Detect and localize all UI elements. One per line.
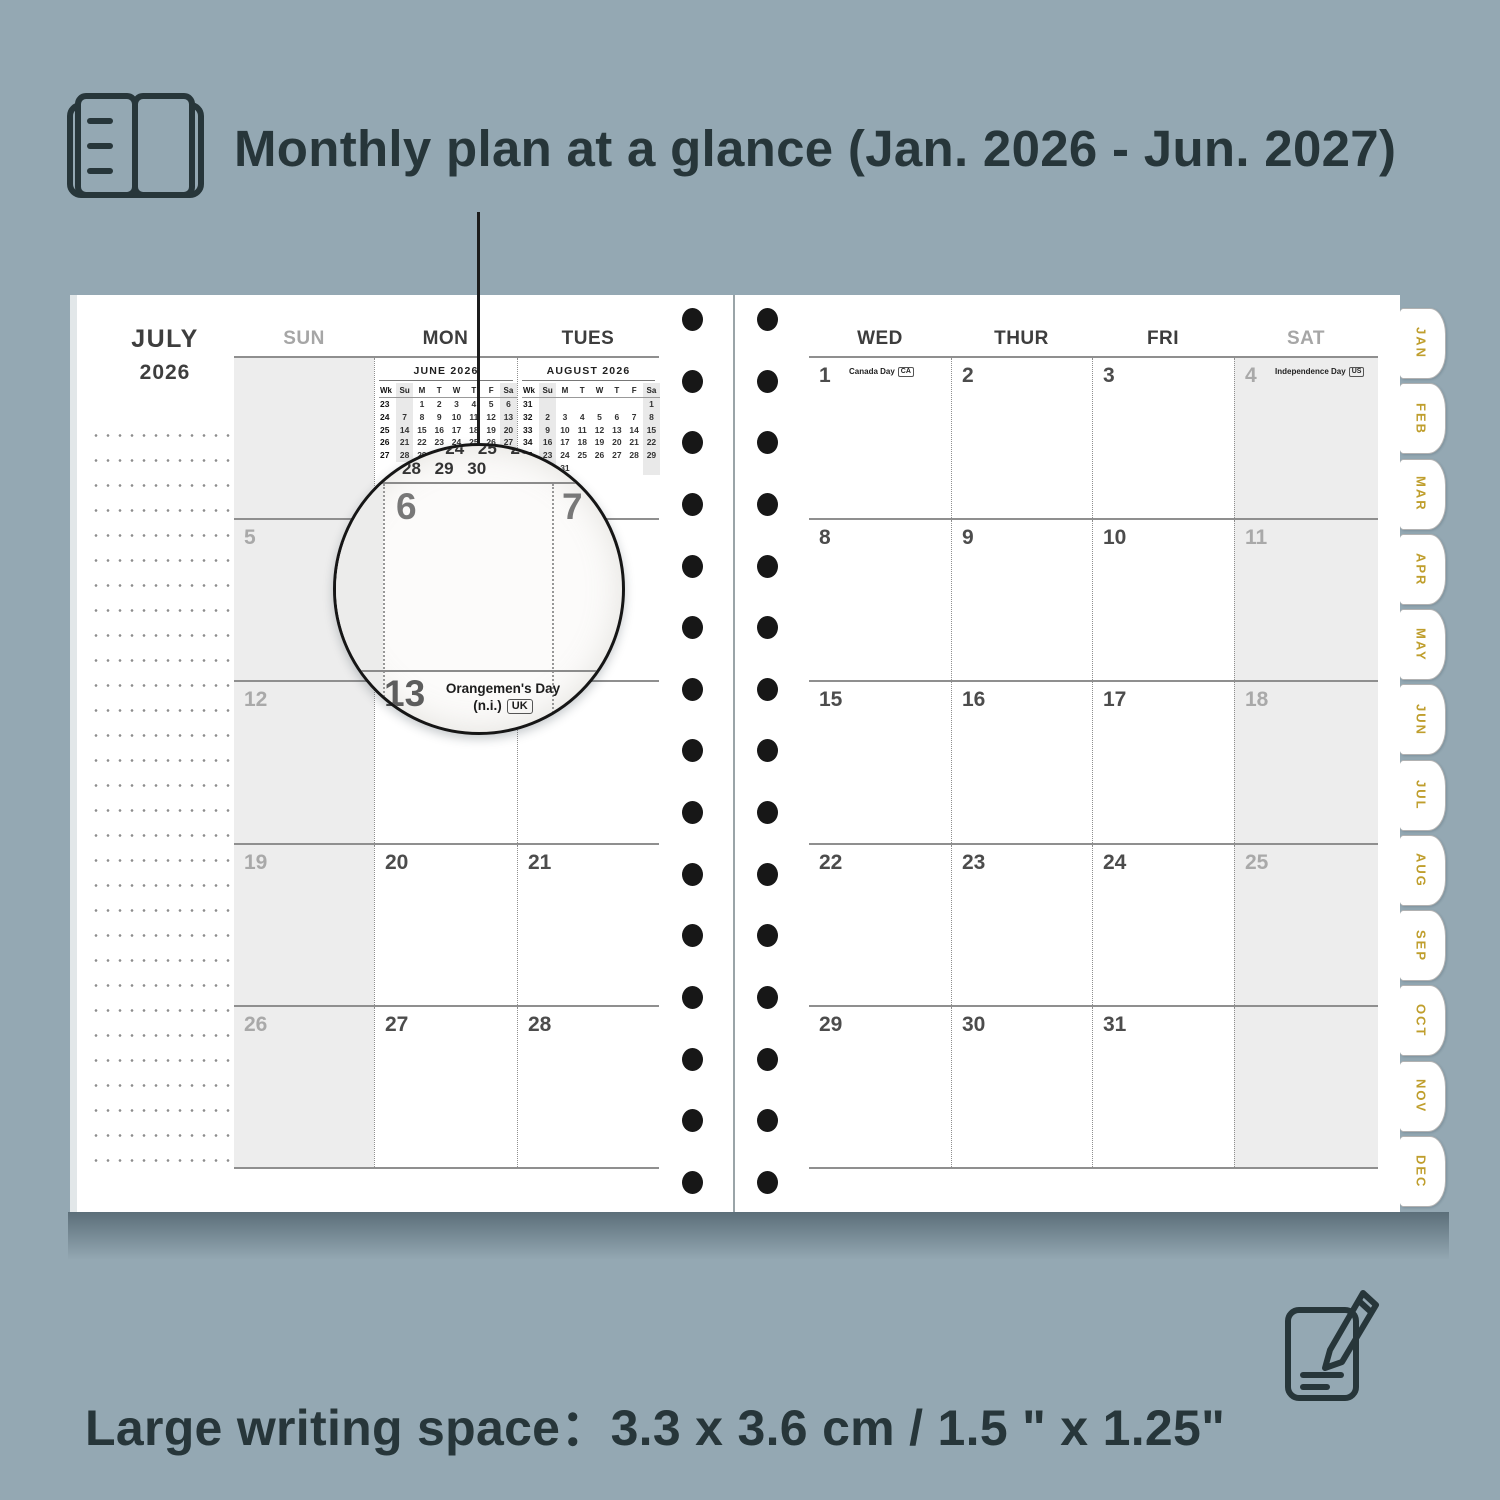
day-number: 3 (1103, 364, 1115, 388)
binder-hole (757, 986, 778, 1009)
mini-calendar-day: 28 (625, 449, 642, 462)
weekday-header: WED (809, 328, 951, 354)
lens-day-number: 13 (384, 673, 425, 715)
month-tab-label: APR (1414, 553, 1429, 586)
binder-hole (682, 308, 703, 331)
binder-hole (757, 1171, 778, 1194)
weekday-header: THUR (951, 328, 1092, 354)
mini-calendar-day: 24 (556, 449, 573, 462)
day-number: 22 (819, 851, 842, 875)
mini-calendar-day: 29 (643, 449, 660, 462)
mini-calendar-day: 11 (574, 424, 591, 437)
day-number: 9 (962, 526, 974, 550)
holiday-label: Independence DayUS (1275, 367, 1364, 377)
mini-calendar-day (643, 462, 660, 475)
mini-calendar-day: 32 (522, 411, 539, 424)
mini-calendar-day: 22 (643, 436, 660, 449)
calendar-week-row: 22232425 (809, 845, 1378, 1007)
calendar-week-row: 1Canada DayCA234Independence DayUS (809, 358, 1378, 520)
mini-calendar-day (608, 462, 625, 475)
weekday-headers-left: SUNMONTUES (234, 328, 659, 354)
mini-calendar-day (625, 398, 642, 411)
month-tab-feb: FEB (1397, 383, 1446, 454)
binder-hole (757, 1048, 778, 1071)
binder-hole (757, 739, 778, 762)
month-tab-jul: JUL (1397, 760, 1446, 831)
calendar-cell: 2 (951, 358, 1092, 518)
lens-mini-row: 22 23 24 25 26 (380, 443, 529, 459)
mini-calendar-day: 31 (522, 398, 539, 411)
month-tab-jun: JUN (1397, 684, 1446, 755)
mini-calendar-day: 7 (396, 411, 413, 424)
binder-hole (682, 986, 703, 1009)
binder-hole (757, 370, 778, 393)
day-number: 30 (962, 1013, 985, 1037)
mini-calendar-header: T (431, 383, 448, 398)
mini-calendar-day (591, 462, 608, 475)
day-number: 23 (962, 851, 985, 875)
binder-hole (682, 1109, 703, 1132)
weekday-header: TUES (517, 328, 659, 354)
mini-calendar-day: 14 (625, 424, 642, 437)
left-page: JULY 2026 SUNMONTUES JUNE 2026WkSuMTWTFS… (70, 295, 733, 1212)
mini-calendar-day: 7 (625, 411, 642, 424)
calendar-cell: 3 (1092, 358, 1234, 518)
mini-calendar-day: 16 (431, 424, 448, 437)
mini-calendar-header: T (574, 383, 591, 398)
mini-calendar-day: 23 (379, 398, 396, 411)
mini-calendar-header: Su (539, 383, 556, 398)
mini-calendar-header: M (556, 383, 573, 398)
binder-hole (682, 1048, 703, 1071)
calendar-cell: 15 (809, 682, 951, 842)
binder-hole (757, 308, 778, 331)
calendar-week-row: 293031 (809, 1007, 1378, 1169)
binder-hole (757, 678, 778, 701)
holiday-text: Canada Day (849, 367, 895, 376)
binder-hole (682, 555, 703, 578)
binder-hole (682, 370, 703, 393)
mini-calendar-header: F (625, 383, 642, 398)
mini-calendar-day: 15 (643, 424, 660, 437)
mini-calendar-header: Sa (643, 383, 660, 398)
product-banner: Monthly plan at a glance (Jan. 2026 - Ju… (0, 0, 1500, 1500)
day-number: 18 (1245, 688, 1268, 712)
calendar-cell: 24 (1092, 845, 1234, 1005)
mini-calendar-header: Wk (522, 383, 539, 398)
binder-hole (682, 863, 703, 886)
mini-calendar-day: 1 (413, 398, 430, 411)
month-tabs: JANFEBMARAPRMAYJUNJULAUGSEPOCTNOVDEC (1397, 308, 1447, 1207)
day-number: 25 (1245, 851, 1268, 875)
binder-hole (682, 801, 703, 824)
mini-calendar-day: 17 (448, 424, 465, 437)
mini-calendar-header: Su (396, 383, 413, 398)
mini-calendar-day: 17 (556, 436, 573, 449)
day-number: 26 (244, 1013, 267, 1037)
mini-calendar-day (396, 398, 413, 411)
binder-hole (757, 924, 778, 947)
calendar-week-row: 262728 (234, 1007, 659, 1169)
mini-calendar-day (608, 398, 625, 411)
mini-calendar-day (539, 398, 556, 411)
mini-calendar-day: 16 (539, 436, 556, 449)
month-name: JULY (110, 325, 220, 354)
holiday-region-badge: CA (898, 367, 914, 377)
calendar-cell: 22 (809, 845, 951, 1005)
calendar-cell: 29 (809, 1007, 951, 1167)
day-number: 28 (528, 1013, 551, 1037)
mini-calendar-day: 10 (448, 411, 465, 424)
mini-calendar-day: 26 (591, 449, 608, 462)
binder-hole (757, 801, 778, 824)
holiday-label: Canada DayCA (849, 367, 914, 377)
binder-hole (757, 616, 778, 639)
mini-calendar-day: 25 (574, 449, 591, 462)
magnifier-circle: 22 23 24 25 26 28 29 30 6 7 13 Orangemen… (333, 443, 625, 735)
calendar-cell (1234, 1007, 1378, 1167)
day-number: 11 (1245, 526, 1267, 550)
weekday-header: MON (374, 328, 517, 354)
mini-calendar-day: 3 (448, 398, 465, 411)
day-number: 8 (819, 526, 831, 550)
calendar-cell: 27 (374, 1007, 517, 1167)
mini-calendar-day: 6 (608, 411, 625, 424)
month-tab-label: AUG (1414, 853, 1429, 888)
mini-calendar-day: 5 (482, 398, 499, 411)
mini-calendar-header: Wk (379, 383, 396, 398)
month-tab-label: OCT (1414, 1004, 1429, 1037)
mini-calendar-day: 12 (591, 424, 608, 437)
mini-calendar-day: 1 (643, 398, 660, 411)
month-tab-label: NOV (1414, 1079, 1429, 1113)
calendar-cell: 26 (234, 1007, 374, 1167)
mini-calendar-day: 10 (556, 424, 573, 437)
month-tab-may: MAY (1397, 609, 1446, 680)
mini-calendar-day: 8 (413, 411, 430, 424)
month-tab-oct: OCT (1397, 985, 1446, 1056)
mini-calendar-day: 15 (413, 424, 430, 437)
weekday-header: SUN (234, 328, 374, 354)
holiday-text: Independence Day (1275, 367, 1346, 376)
binder-hole (682, 678, 703, 701)
month-tab-nov: NOV (1397, 1061, 1446, 1132)
mini-calendar-day: 3 (556, 411, 573, 424)
month-title-block: JULY 2026 (110, 325, 220, 385)
mini-calendar-day: 9 (539, 424, 556, 437)
magnifier-pointer-line (477, 212, 480, 446)
binder-hole (682, 431, 703, 454)
binder-hole (682, 616, 703, 639)
lens-holiday-label: Orangemen's Day (n.i.)UK (424, 680, 582, 714)
mini-calendar-day (625, 462, 642, 475)
holiday-region-badge: UK (507, 699, 533, 714)
day-number: 15 (819, 688, 842, 712)
month-tab-aug: AUG (1397, 835, 1446, 906)
mini-calendar-header: T (608, 383, 625, 398)
binder-hole (682, 1171, 703, 1194)
calendar-cell: 20 (374, 845, 517, 1005)
binder-hole (757, 555, 778, 578)
calendar-cell: 21 (517, 845, 659, 1005)
day-number: 12 (244, 688, 267, 712)
calendar-week-row: 192021 (234, 845, 659, 1007)
calendar-cell: 1Canada DayCA (809, 358, 951, 518)
mini-calendar-day: 2 (431, 398, 448, 411)
mini-calendar-day: 21 (625, 436, 642, 449)
mini-calendar-day: 25 (379, 424, 396, 437)
binder-hole (757, 493, 778, 516)
day-number: 1 (819, 364, 831, 388)
mini-calendar-day: 20 (608, 436, 625, 449)
mini-calendar-day: 4 (574, 411, 591, 424)
top-caption: Monthly plan at a glance (Jan. 2026 - Ju… (63, 90, 1396, 207)
lens-mini-row: 28 29 30 (402, 459, 486, 479)
mini-calendar-title: JUNE 2026 (379, 362, 513, 381)
open-planner-icon (63, 90, 208, 207)
month-tab-jan: JAN (1397, 308, 1446, 379)
binder-hole (757, 863, 778, 886)
calendar-cell: 18 (1234, 682, 1378, 842)
day-number: 31 (1103, 1013, 1126, 1037)
notepad-pencil-icon (1282, 1282, 1384, 1409)
calendar-cell: 4Independence DayUS (1234, 358, 1378, 518)
mini-calendar-header: W (448, 383, 465, 398)
mini-calendar-day: 19 (591, 436, 608, 449)
month-year: 2026 (110, 361, 220, 385)
right-page: WEDTHURFRISAT 1Canada DayCA234Independen… (733, 295, 1400, 1212)
calendar-week-row: 891011 (809, 520, 1378, 682)
mini-calendar-day: 2 (539, 411, 556, 424)
month-tab-label: FEB (1414, 403, 1429, 435)
mini-calendar-day: 33 (522, 424, 539, 437)
mini-calendar-day: 5 (591, 411, 608, 424)
mini-calendar-day: 6 (500, 398, 517, 411)
month-tab-label: SEP (1414, 930, 1429, 962)
weekday-headers-right: WEDTHURFRISAT (809, 328, 1378, 354)
mini-calendar-day (591, 398, 608, 411)
mini-calendar-header: W (591, 383, 608, 398)
day-number: 20 (385, 851, 408, 875)
lens-day-number: 6 (396, 486, 417, 528)
month-tab-dec: DEC (1397, 1136, 1446, 1207)
calendar-cell: 10 (1092, 520, 1234, 680)
binder-hole (757, 1109, 778, 1132)
day-number: 2 (962, 364, 974, 388)
top-caption-text: Monthly plan at a glance (Jan. 2026 - Ju… (234, 119, 1396, 178)
lens-grid-line (336, 670, 622, 672)
mini-calendar-day: 24 (379, 411, 396, 424)
day-number: 21 (528, 851, 551, 875)
calendar-cell: 28 (517, 1007, 659, 1167)
mini-calendar-header: Sa (500, 383, 517, 398)
lens-shaded-column (336, 484, 383, 732)
binder-hole (682, 493, 703, 516)
mini-calendar-day: 27 (608, 449, 625, 462)
day-number: 29 (819, 1013, 842, 1037)
calendar-cell: 11 (1234, 520, 1378, 680)
mini-calendar-day: 8 (643, 411, 660, 424)
mini-calendar-title: AUGUST 2026 (522, 362, 655, 381)
mini-calendar-day: 14 (396, 424, 413, 437)
bottom-caption-text: Large writing space：3.3 x 3.6 cm / 1.5 "… (85, 1388, 1225, 1460)
month-tab-label: JAN (1414, 327, 1429, 359)
binder-hole (757, 431, 778, 454)
month-tab-label: DEC (1414, 1155, 1429, 1188)
day-number: 16 (962, 688, 985, 712)
spiral-binding-right (757, 308, 779, 1194)
mini-calendar-day: 19 (482, 424, 499, 437)
holiday-region-badge: US (1349, 367, 1365, 377)
mini-calendar-day: 9 (431, 411, 448, 424)
day-number: 4 (1245, 364, 1257, 388)
day-number: 5 (244, 526, 256, 550)
calendar-cell: 31 (1092, 1007, 1234, 1167)
mini-calendar-day: 20 (500, 424, 517, 437)
day-number: 24 (1103, 851, 1126, 875)
calendar-cell: 25 (1234, 845, 1378, 1005)
day-number: 10 (1103, 526, 1126, 550)
mini-calendar-day (574, 398, 591, 411)
mini-calendar-day (556, 398, 573, 411)
weekday-header: FRI (1092, 328, 1234, 354)
calendar-cell: 23 (951, 845, 1092, 1005)
mini-calendar-day: 13 (500, 411, 517, 424)
month-tab-label: JUN (1414, 704, 1429, 736)
notes-dot-grid (88, 413, 232, 1165)
day-number: 19 (244, 851, 267, 875)
day-number: 17 (1103, 688, 1126, 712)
planner-spread: JULY 2026 SUNMONTUES JUNE 2026WkSuMTWTFS… (70, 295, 1400, 1212)
mini-calendar-day: 18 (574, 436, 591, 449)
spiral-binding-left (682, 308, 704, 1194)
day-number: 27 (385, 1013, 408, 1037)
month-tab-label: MAY (1414, 628, 1429, 662)
calendar-cell: 17 (1092, 682, 1234, 842)
month-tab-sep: SEP (1397, 910, 1446, 981)
lens-day-number: 7 (562, 486, 583, 528)
calendar-cell: 30 (951, 1007, 1092, 1167)
mini-calendar-header: F (482, 383, 499, 398)
weekday-header: SAT (1234, 328, 1378, 354)
mini-calendar-day: 13 (608, 424, 625, 437)
month-tab-label: JUL (1414, 780, 1429, 811)
mini-calendar-day (574, 462, 591, 475)
mini-calendar-day: 12 (482, 411, 499, 424)
calendar-grid-right: 1Canada DayCA234Independence DayUS891011… (809, 356, 1378, 1169)
binder-hole (682, 924, 703, 947)
month-tab-label: MAR (1414, 476, 1429, 512)
calendar-cell: 16 (951, 682, 1092, 842)
mini-calendar-header: M (413, 383, 430, 398)
calendar-cell: 8 (809, 520, 951, 680)
calendar-cell: 19 (234, 845, 374, 1005)
binder-hole (682, 739, 703, 762)
month-tab-apr: APR (1397, 534, 1446, 605)
month-tab-mar: MAR (1397, 459, 1446, 530)
calendar-week-row: 15161718 (809, 682, 1378, 844)
calendar-cell: 9 (951, 520, 1092, 680)
